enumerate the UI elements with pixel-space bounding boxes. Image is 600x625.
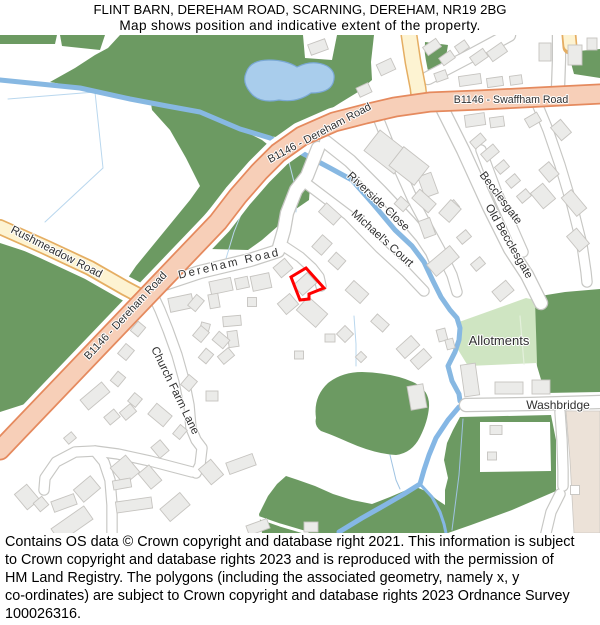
svg-text:Allotments: Allotments	[469, 333, 530, 348]
svg-text:B1146 - Swaffham Road: B1146 - Swaffham Road	[454, 94, 569, 106]
svg-text:Washbridge: Washbridge	[526, 398, 590, 412]
